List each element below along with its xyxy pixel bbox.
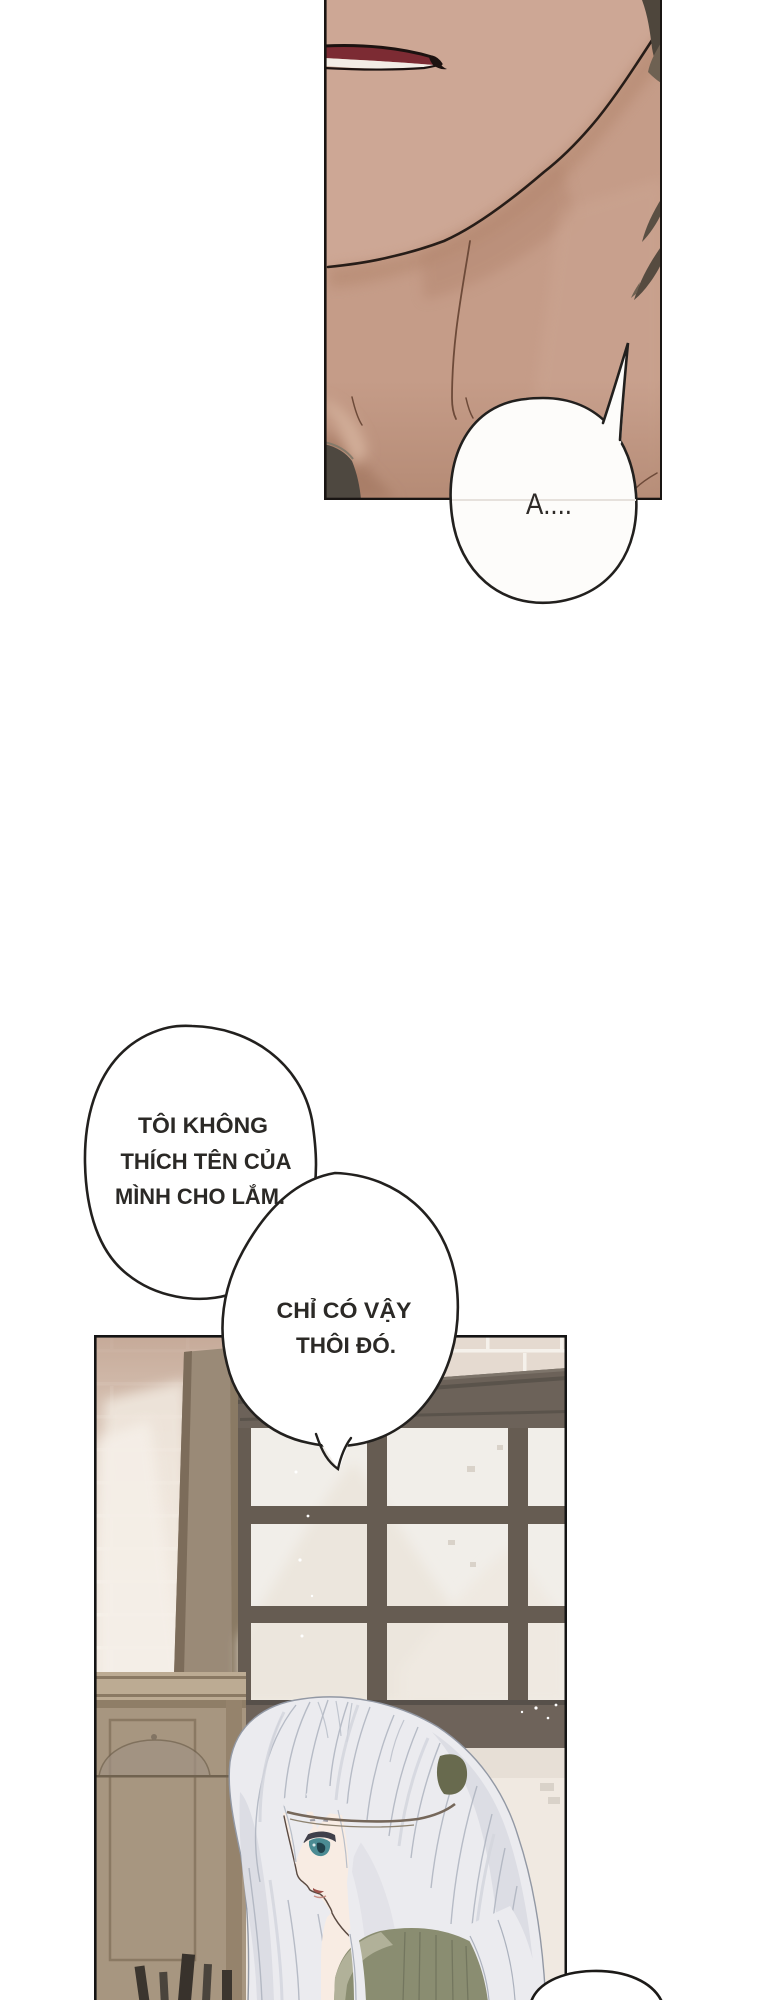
svg-text:MÌNH CHO LẮM.: MÌNH CHO LẮM.	[115, 1184, 285, 1209]
svg-text:TÔI KHÔNG: TÔI KHÔNG	[138, 1113, 268, 1138]
svg-text:CHỈ CÓ VẬY: CHỈ CÓ VẬY	[277, 1298, 412, 1323]
svg-text:THÍCH TÊN CỦA: THÍCH TÊN CỦA	[121, 1149, 292, 1174]
svg-text:A....: A....	[526, 488, 572, 521]
svg-text:THÔI ĐÓ.: THÔI ĐÓ.	[296, 1333, 396, 1358]
